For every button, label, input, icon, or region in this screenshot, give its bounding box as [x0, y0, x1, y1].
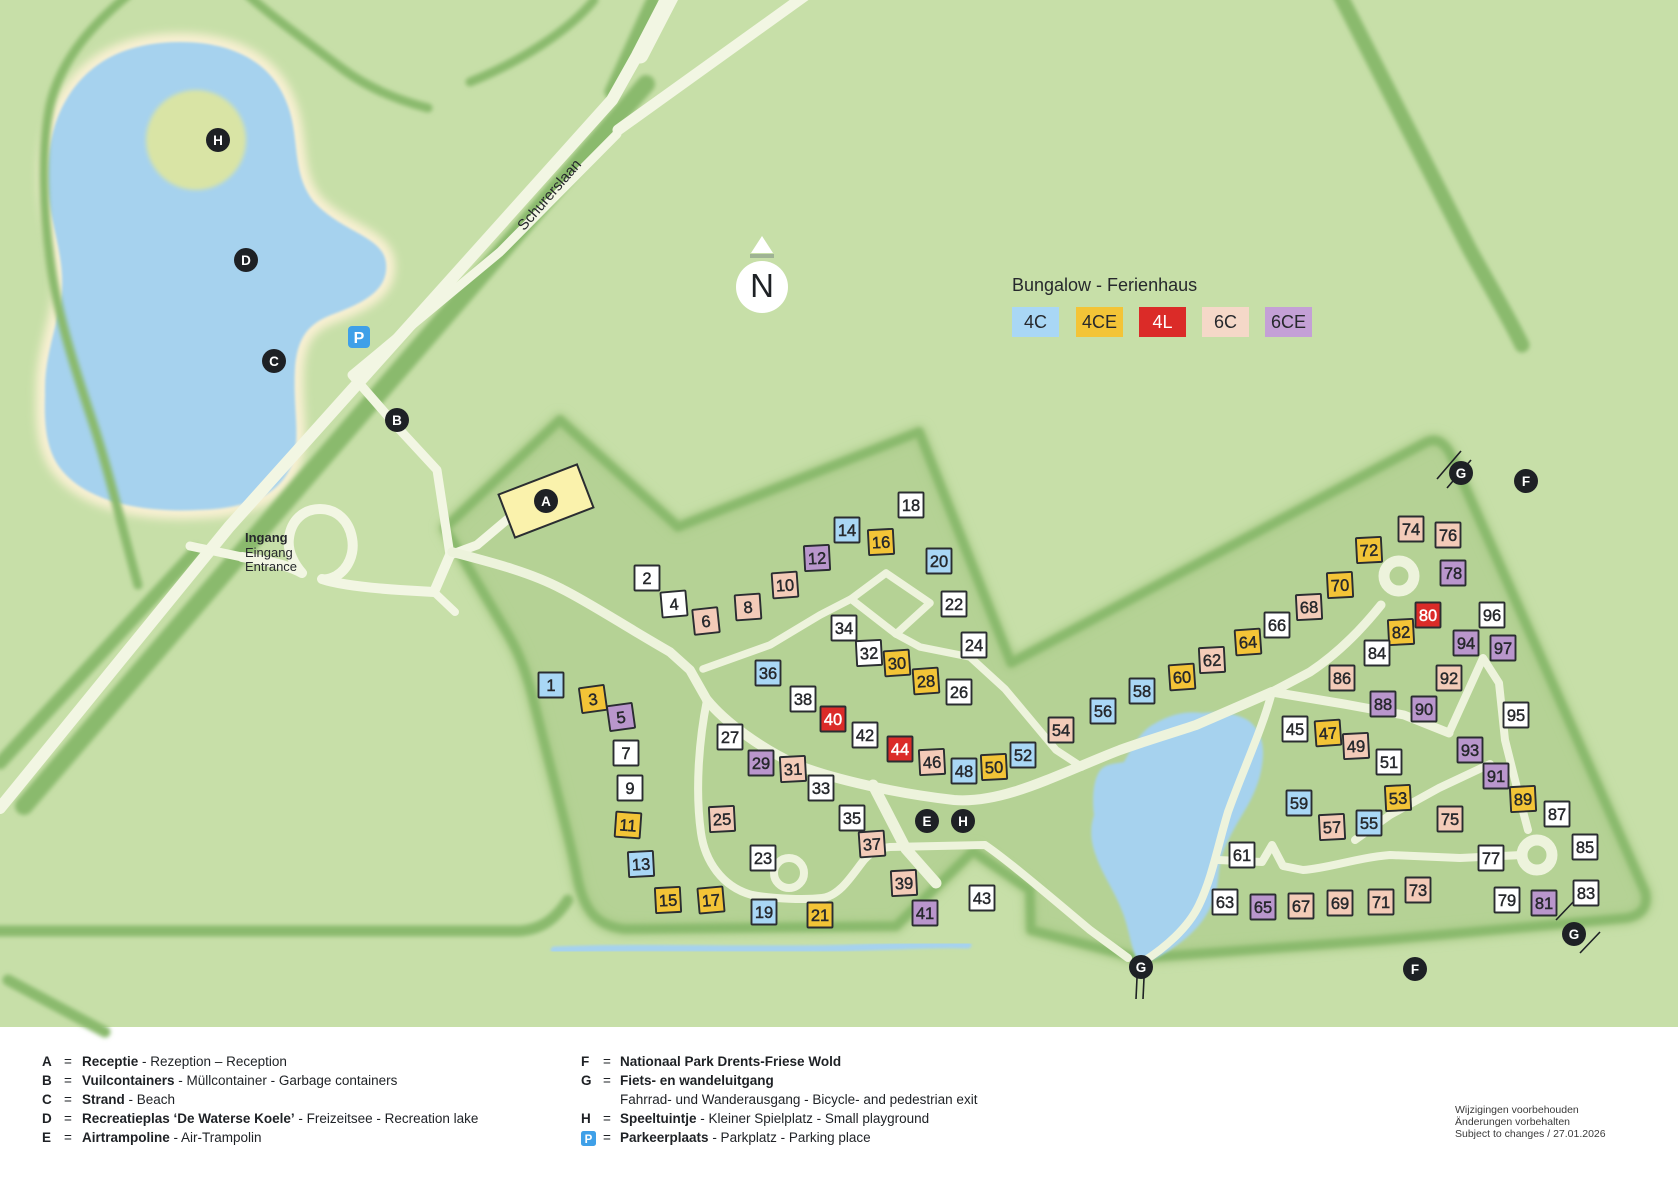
- svg-text:66: 66: [1268, 617, 1286, 635]
- svg-text:64: 64: [1238, 633, 1258, 652]
- svg-text:E: E: [42, 1130, 51, 1145]
- svg-text:76: 76: [1439, 527, 1457, 545]
- svg-text:91: 91: [1487, 768, 1505, 786]
- svg-text:Fiets- en wandeluitgang: Fiets- en wandeluitgang: [620, 1073, 774, 1088]
- svg-text:F: F: [1411, 962, 1419, 977]
- svg-text:87: 87: [1548, 806, 1566, 824]
- svg-text:63: 63: [1216, 894, 1234, 912]
- svg-text:62: 62: [1202, 652, 1221, 671]
- svg-text:57: 57: [1322, 819, 1341, 838]
- svg-text:Airtrampoline - Air-Trampolin: Airtrampoline - Air-Trampolin: [82, 1130, 262, 1145]
- svg-text:2: 2: [642, 570, 651, 588]
- svg-text:=: =: [64, 1130, 72, 1145]
- svg-text:30: 30: [887, 654, 907, 673]
- svg-text:Fahrrad- und Wanderausgang - B: Fahrrad- und Wanderausgang - Bicycle- an…: [620, 1092, 978, 1107]
- svg-text:10: 10: [775, 576, 795, 595]
- svg-text:A: A: [541, 494, 551, 509]
- svg-text:17: 17: [701, 891, 721, 911]
- svg-text:49: 49: [1346, 738, 1365, 757]
- svg-text:Eingang: Eingang: [245, 545, 293, 560]
- svg-text:32: 32: [859, 645, 878, 664]
- svg-text:96: 96: [1483, 607, 1501, 625]
- svg-text:34: 34: [835, 620, 853, 638]
- svg-text:Entrance: Entrance: [245, 559, 297, 574]
- svg-text:83: 83: [1577, 885, 1595, 903]
- svg-text:48: 48: [955, 763, 973, 781]
- svg-text:F: F: [581, 1054, 589, 1069]
- svg-text:67: 67: [1292, 898, 1310, 916]
- svg-text:56: 56: [1094, 703, 1112, 721]
- svg-text:19: 19: [755, 904, 773, 922]
- svg-text:78: 78: [1444, 565, 1462, 583]
- svg-text:1: 1: [546, 677, 555, 695]
- svg-text:18: 18: [902, 497, 920, 515]
- svg-text:55: 55: [1360, 815, 1378, 833]
- svg-text:=: =: [64, 1073, 72, 1088]
- svg-text:92: 92: [1440, 670, 1458, 688]
- svg-text:4: 4: [669, 596, 680, 615]
- svg-text:50: 50: [984, 759, 1003, 778]
- svg-text:4CE: 4CE: [1082, 312, 1117, 332]
- svg-text:43: 43: [973, 890, 991, 908]
- svg-text:61: 61: [1233, 847, 1251, 865]
- svg-text:B: B: [42, 1073, 52, 1088]
- svg-text:Änderungen vorbehalten: Änderungen vorbehalten: [1455, 1116, 1570, 1128]
- svg-text:Speeltuintje - Kleiner Spielpl: Speeltuintje - Kleiner Spielplatz - Smal…: [620, 1111, 929, 1126]
- svg-text:C: C: [269, 354, 279, 369]
- svg-text:33: 33: [812, 780, 830, 798]
- svg-text:=: =: [603, 1054, 611, 1069]
- svg-text:Recreatieplas ‘De Waterse Koel: Recreatieplas ‘De Waterse Koele’ - Freiz…: [82, 1111, 478, 1126]
- svg-text:54: 54: [1052, 722, 1070, 740]
- svg-text:84: 84: [1368, 645, 1386, 663]
- svg-text:13: 13: [631, 856, 650, 875]
- svg-text:25: 25: [712, 811, 731, 830]
- svg-text:Parkeerplaats - Parkplatz - Pa: Parkeerplaats - Parkplatz - Parking plac…: [620, 1130, 871, 1145]
- svg-text:42: 42: [856, 727, 874, 745]
- svg-text:44: 44: [891, 741, 909, 759]
- svg-text:53: 53: [1388, 790, 1407, 809]
- svg-text:16: 16: [871, 534, 890, 553]
- svg-text:6: 6: [701, 613, 712, 632]
- svg-text:21: 21: [811, 907, 829, 925]
- svg-text:23: 23: [754, 850, 772, 868]
- svg-text:47: 47: [1318, 724, 1338, 743]
- svg-text:27: 27: [721, 729, 739, 747]
- svg-text:N: N: [750, 267, 774, 304]
- svg-text:73: 73: [1409, 882, 1427, 900]
- svg-text:B: B: [392, 413, 402, 428]
- svg-text:82: 82: [1391, 624, 1410, 643]
- svg-text:Vuilcontainers - Müllcontainer: Vuilcontainers - Müllcontainer - Garbage…: [82, 1073, 398, 1088]
- svg-text:4L: 4L: [1152, 312, 1172, 332]
- svg-text:86: 86: [1333, 670, 1351, 688]
- svg-text:29: 29: [752, 755, 770, 773]
- svg-text:97: 97: [1494, 640, 1512, 658]
- svg-text:93: 93: [1461, 742, 1479, 760]
- svg-text:7: 7: [621, 745, 630, 763]
- svg-text:P: P: [585, 1134, 593, 1146]
- svg-text:45: 45: [1286, 721, 1304, 739]
- svg-text:Strand - Beach: Strand - Beach: [82, 1092, 175, 1107]
- svg-text:58: 58: [1133, 683, 1151, 701]
- svg-text:=: =: [603, 1130, 611, 1145]
- svg-text:40: 40: [824, 711, 842, 729]
- svg-text:51: 51: [1380, 754, 1398, 772]
- svg-text:G: G: [1569, 927, 1580, 942]
- svg-text:=: =: [64, 1111, 72, 1126]
- svg-text:6CE: 6CE: [1271, 312, 1306, 332]
- svg-text:11: 11: [619, 816, 637, 835]
- svg-text:77: 77: [1482, 850, 1500, 868]
- svg-text:89: 89: [1513, 791, 1532, 810]
- svg-text:A: A: [42, 1054, 52, 1069]
- svg-text:37: 37: [862, 835, 882, 854]
- svg-text:9: 9: [625, 780, 634, 798]
- svg-text:H: H: [958, 814, 968, 829]
- svg-text:20: 20: [930, 553, 948, 571]
- svg-text:P: P: [354, 330, 365, 347]
- svg-text:80: 80: [1419, 607, 1437, 625]
- svg-text:26: 26: [950, 684, 968, 702]
- svg-text:88: 88: [1374, 696, 1392, 714]
- svg-text:81: 81: [1535, 895, 1553, 913]
- svg-text:Subject to changes / 27.01.202: Subject to changes / 27.01.2026: [1455, 1128, 1606, 1140]
- svg-text:F: F: [1522, 474, 1530, 489]
- svg-text:C: C: [42, 1092, 52, 1107]
- svg-text:Nationaal Park Drents-Friese W: Nationaal Park Drents-Friese Wold: [620, 1054, 841, 1069]
- svg-text:68: 68: [1299, 599, 1318, 618]
- svg-text:14: 14: [838, 522, 856, 540]
- svg-text:39: 39: [894, 875, 913, 894]
- svg-text:G: G: [1136, 960, 1147, 975]
- svg-text:35: 35: [843, 810, 861, 828]
- svg-text:69: 69: [1331, 895, 1349, 913]
- svg-text:15: 15: [658, 892, 677, 911]
- svg-text:D: D: [241, 253, 251, 268]
- svg-text:46: 46: [922, 754, 941, 773]
- svg-text:Wijzigingen voorbehouden: Wijzigingen voorbehouden: [1455, 1104, 1579, 1116]
- svg-text:60: 60: [1172, 668, 1192, 687]
- svg-text:79: 79: [1498, 892, 1516, 910]
- svg-text:41: 41: [916, 905, 934, 923]
- svg-text:70: 70: [1330, 577, 1349, 596]
- svg-text:E: E: [922, 814, 931, 829]
- svg-text:H: H: [581, 1111, 591, 1126]
- svg-text:95: 95: [1507, 707, 1525, 725]
- svg-text:Receptie - Rezeption – Recepti: Receptie - Rezeption – Reception: [82, 1054, 287, 1069]
- svg-text:94: 94: [1457, 635, 1475, 653]
- svg-text:75: 75: [1441, 811, 1459, 829]
- svg-text:G: G: [1456, 466, 1467, 481]
- svg-text:65: 65: [1254, 899, 1272, 917]
- svg-text:36: 36: [759, 665, 777, 683]
- svg-text:6C: 6C: [1214, 312, 1237, 332]
- svg-text:D: D: [42, 1111, 52, 1126]
- svg-text:Bungalow - Ferienhaus: Bungalow - Ferienhaus: [1012, 275, 1197, 295]
- svg-text:71: 71: [1372, 894, 1390, 912]
- svg-text:=: =: [64, 1092, 72, 1107]
- svg-text:G: G: [581, 1073, 592, 1088]
- svg-text:28: 28: [916, 672, 936, 691]
- svg-text:90: 90: [1415, 701, 1433, 719]
- svg-text:52: 52: [1014, 747, 1032, 765]
- svg-text:=: =: [64, 1054, 72, 1069]
- svg-text:=: =: [603, 1111, 611, 1126]
- svg-text:38: 38: [794, 691, 812, 709]
- svg-text:4C: 4C: [1024, 312, 1047, 332]
- svg-text:22: 22: [945, 596, 963, 614]
- svg-text:=: =: [603, 1073, 611, 1088]
- svg-text:Ingang: Ingang: [245, 530, 288, 545]
- svg-text:59: 59: [1290, 795, 1308, 813]
- svg-text:74: 74: [1402, 521, 1420, 539]
- svg-text:31: 31: [783, 761, 802, 780]
- svg-text:8: 8: [743, 599, 753, 618]
- svg-text:85: 85: [1576, 839, 1594, 857]
- svg-text:24: 24: [965, 637, 983, 655]
- svg-text:H: H: [213, 133, 223, 148]
- svg-text:12: 12: [807, 550, 826, 569]
- svg-text:72: 72: [1359, 542, 1378, 561]
